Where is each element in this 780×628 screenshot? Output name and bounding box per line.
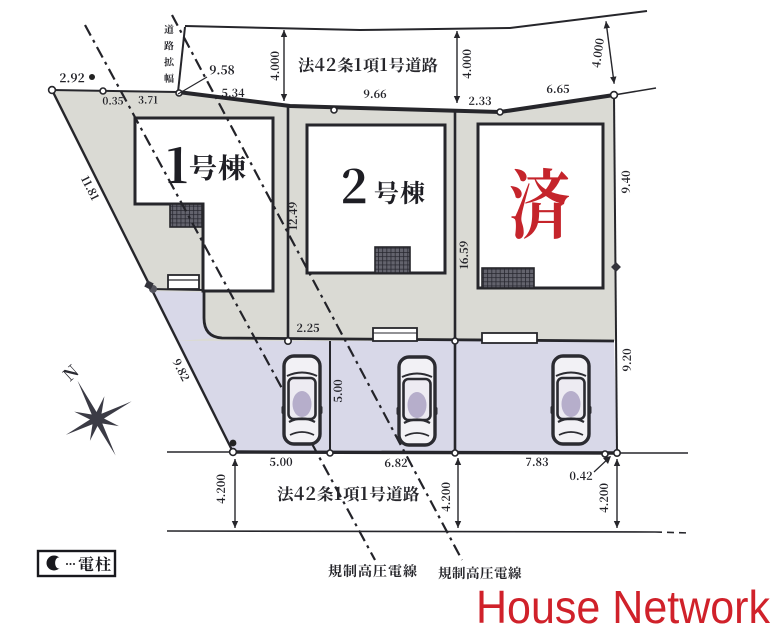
svg-text:House Network: House Network [476,581,771,628]
